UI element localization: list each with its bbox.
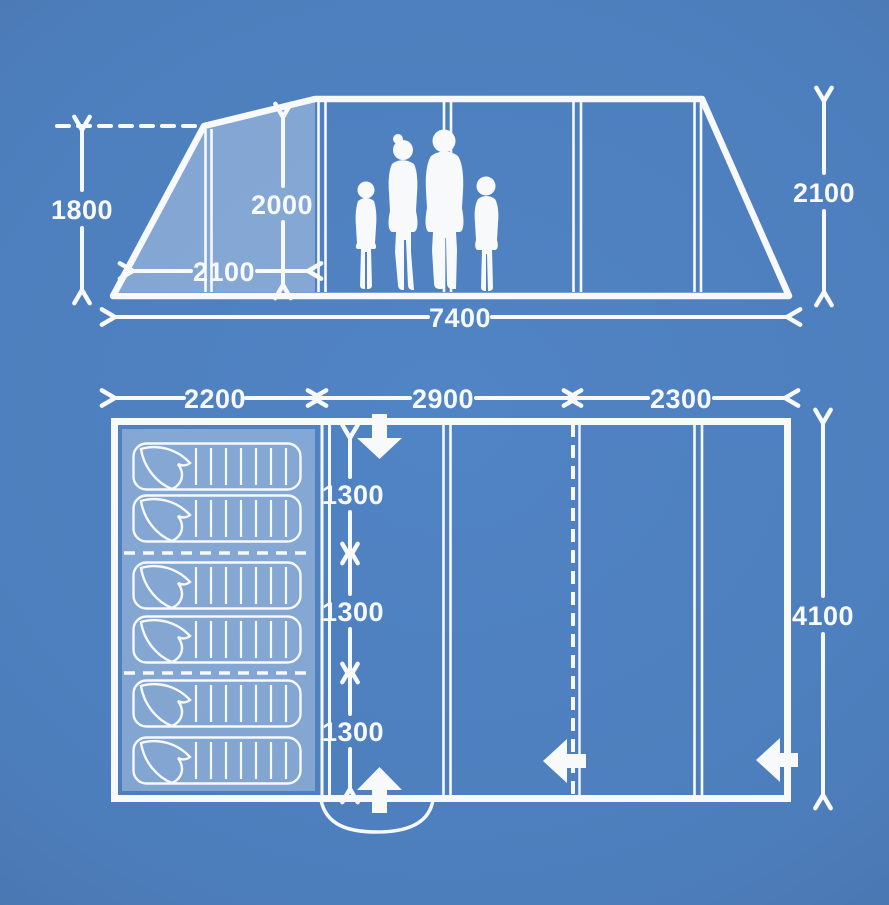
dimension-label: 1300 xyxy=(322,597,384,627)
side-elevation-view: 1800 2000 2100 7400 2100 xyxy=(51,99,855,333)
girl-silhouette xyxy=(356,182,377,290)
dimension-label: 1300 xyxy=(322,717,384,747)
dimension-label: 4100 xyxy=(792,601,854,631)
rear-door-arrow-left-icon xyxy=(756,738,798,782)
dimension-label: 2000 xyxy=(251,190,313,220)
dimension-section-1-width: 2200 xyxy=(115,384,313,414)
dimension-label: 2900 xyxy=(412,384,474,414)
dimension-berth-1-depth: 1300 xyxy=(322,438,384,550)
dimension-berth-2-depth: 1300 xyxy=(322,557,384,669)
floor-plan-view: 2200 2900 2300 1300 1300 1300 xyxy=(115,384,855,832)
diagram-canvas: 1800 2000 2100 7400 2100 xyxy=(0,0,889,905)
dimension-total-depth: 4100 xyxy=(792,423,854,795)
dimension-label: 1300 xyxy=(322,480,384,510)
dimension-label: 7400 xyxy=(429,303,491,333)
tent-dimensions-diagram: 1800 2000 2100 7400 2100 xyxy=(0,0,889,905)
dimension-total-length: 7400 xyxy=(115,303,787,333)
dimension-label: 2200 xyxy=(184,384,246,414)
dimension-label: 2300 xyxy=(650,384,712,414)
woman-silhouette xyxy=(389,134,418,290)
dimension-section-3-width: 2300 xyxy=(577,384,785,414)
family-silhouette xyxy=(356,130,499,292)
dimension-peak-height: 1800 xyxy=(51,130,113,290)
boy-silhouette xyxy=(475,177,499,292)
dimension-section-2-width: 2900 xyxy=(321,384,568,414)
main-door-arrow-up-icon xyxy=(357,767,402,813)
door-arrows xyxy=(357,414,798,813)
dimension-label: 1800 xyxy=(51,195,113,225)
dimension-label: 2100 xyxy=(193,257,255,287)
dimension-label: 2100 xyxy=(793,178,855,208)
dimension-rear-height: 2100 xyxy=(793,101,855,292)
